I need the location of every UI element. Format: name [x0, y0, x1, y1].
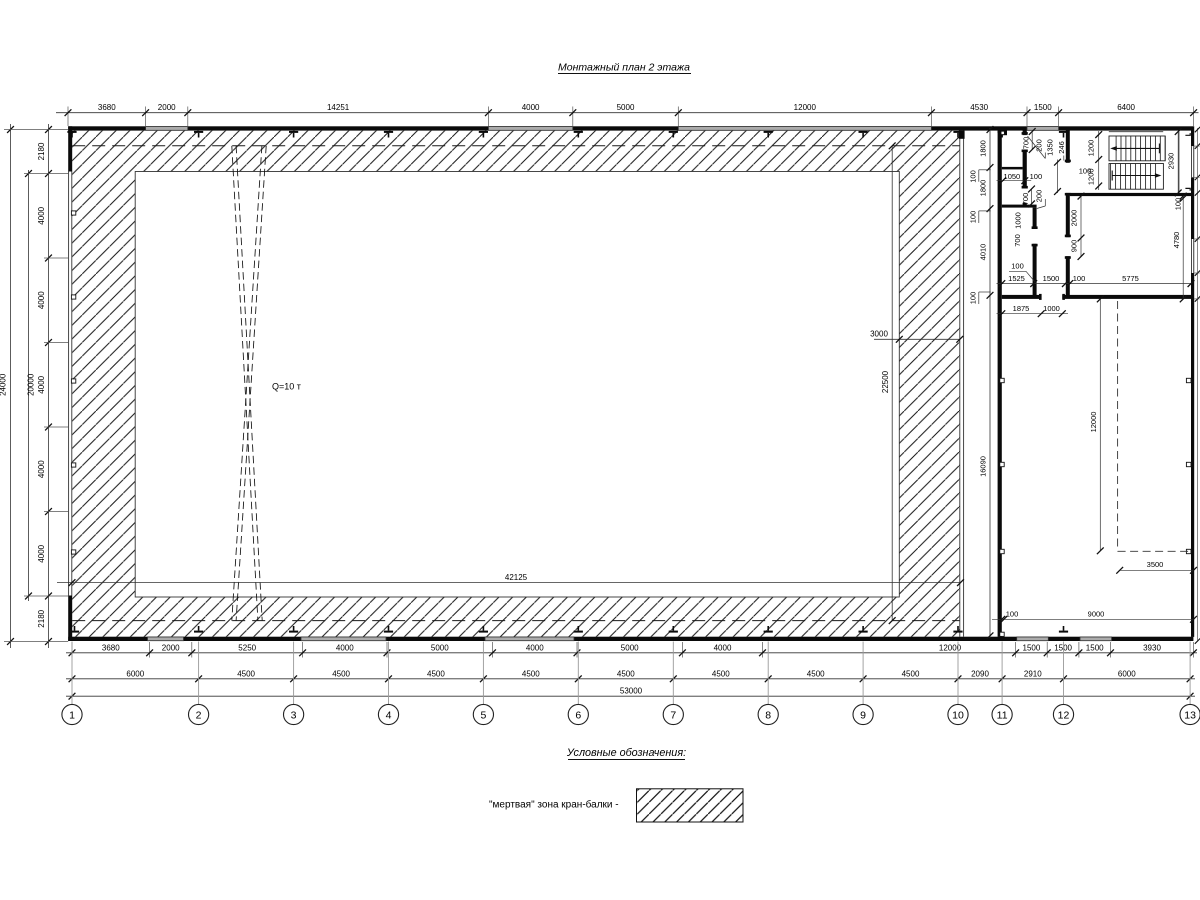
svg-text:1800: 1800: [979, 140, 988, 157]
svg-text:14251: 14251: [327, 103, 350, 112]
svg-text:4000: 4000: [37, 206, 46, 224]
svg-text:5000: 5000: [431, 643, 449, 652]
svg-text:2910: 2910: [1024, 669, 1042, 678]
svg-text:1500: 1500: [1086, 643, 1104, 652]
svg-text:200: 200: [1035, 190, 1044, 203]
svg-text:12: 12: [1058, 709, 1070, 721]
svg-text:900: 900: [1070, 240, 1079, 253]
svg-text:1000: 1000: [1013, 212, 1022, 229]
svg-text:13: 13: [1184, 709, 1196, 721]
svg-text:1: 1: [69, 709, 75, 721]
svg-text:5250: 5250: [238, 643, 256, 652]
svg-text:Q=10 т: Q=10 т: [272, 382, 301, 392]
svg-text:1000: 1000: [1043, 304, 1060, 313]
svg-text:6000: 6000: [1118, 669, 1136, 678]
svg-text:3680: 3680: [98, 103, 116, 112]
svg-text:5: 5: [480, 709, 486, 721]
svg-text:1875: 1875: [1013, 304, 1030, 313]
svg-text:12000: 12000: [794, 103, 817, 112]
svg-text:53000: 53000: [620, 687, 643, 696]
svg-text:4000: 4000: [336, 643, 354, 652]
svg-text:1350: 1350: [1045, 139, 1054, 156]
svg-text:Условные обозначения:: Условные обозначения:: [566, 747, 686, 759]
svg-text:4500: 4500: [427, 669, 445, 678]
svg-text:4000: 4000: [37, 375, 46, 393]
svg-text:1800: 1800: [979, 180, 988, 197]
svg-text:246: 246: [1057, 141, 1066, 154]
svg-text:1200: 1200: [1087, 140, 1096, 157]
svg-text:100: 100: [1174, 198, 1183, 211]
svg-text:1500: 1500: [1043, 274, 1060, 283]
svg-text:11: 11: [997, 709, 1008, 721]
svg-text:3930: 3930: [1143, 643, 1161, 652]
svg-text:2090: 2090: [971, 669, 989, 678]
svg-text:"мертвая" зона кран-балки -: "мертвая" зона кран-балки -: [489, 799, 619, 811]
svg-text:4500: 4500: [902, 669, 920, 678]
svg-text:4010: 4010: [979, 244, 988, 261]
svg-text:3000: 3000: [870, 330, 888, 339]
svg-text:4000: 4000: [37, 460, 46, 478]
svg-text:4500: 4500: [522, 669, 540, 678]
svg-text:9000: 9000: [1088, 610, 1105, 619]
svg-text:2000: 2000: [158, 103, 176, 112]
svg-text:3680: 3680: [102, 643, 120, 652]
svg-text:7: 7: [670, 709, 676, 721]
svg-text:1525: 1525: [1008, 274, 1025, 283]
svg-text:100: 100: [1011, 262, 1024, 271]
svg-text:4500: 4500: [237, 669, 255, 678]
svg-text:4500: 4500: [712, 669, 730, 678]
svg-text:Монтажный план 2 этажа: Монтажный план 2 этажа: [558, 62, 690, 74]
svg-text:2000: 2000: [1070, 210, 1079, 227]
svg-text:4000: 4000: [37, 544, 46, 562]
svg-text:4000: 4000: [522, 103, 540, 112]
svg-text:42125: 42125: [505, 573, 528, 582]
svg-text:6000: 6000: [126, 669, 144, 678]
svg-text:4500: 4500: [332, 669, 350, 678]
svg-text:16090: 16090: [979, 456, 988, 477]
svg-text:4000: 4000: [37, 291, 46, 309]
svg-text:1500: 1500: [1034, 103, 1052, 112]
svg-text:10: 10: [952, 709, 964, 721]
svg-text:5000: 5000: [621, 643, 639, 652]
svg-text:100: 100: [968, 170, 977, 183]
svg-text:3500: 3500: [1147, 560, 1164, 569]
svg-text:700: 700: [1013, 234, 1022, 247]
svg-text:6: 6: [575, 709, 581, 721]
svg-text:1200: 1200: [1087, 168, 1096, 185]
svg-text:2: 2: [196, 709, 202, 721]
svg-text:6400: 6400: [1117, 103, 1135, 112]
svg-text:4000: 4000: [714, 643, 732, 652]
svg-text:4000: 4000: [526, 643, 544, 652]
svg-text:4500: 4500: [617, 669, 635, 678]
svg-text:2180: 2180: [37, 609, 46, 627]
svg-text:2930: 2930: [1166, 153, 1175, 170]
svg-text:100: 100: [968, 211, 977, 224]
svg-text:100: 100: [1073, 274, 1086, 283]
svg-text:3: 3: [291, 709, 297, 721]
svg-text:100: 100: [968, 292, 977, 305]
svg-text:8: 8: [765, 709, 771, 721]
svg-text:4500: 4500: [807, 669, 825, 678]
svg-text:20000: 20000: [27, 373, 36, 396]
svg-text:5775: 5775: [1122, 274, 1139, 283]
svg-text:4780: 4780: [1172, 232, 1181, 249]
svg-text:4: 4: [386, 709, 392, 721]
svg-text:4530: 4530: [970, 103, 988, 112]
svg-text:100: 100: [1006, 610, 1019, 619]
svg-text:1500: 1500: [1023, 643, 1041, 652]
svg-text:200: 200: [1035, 139, 1044, 152]
svg-text:22500: 22500: [881, 370, 890, 393]
svg-text:2000: 2000: [162, 643, 180, 652]
svg-text:100: 100: [1030, 172, 1043, 181]
svg-text:24000: 24000: [0, 373, 8, 396]
svg-text:2180: 2180: [37, 142, 46, 160]
svg-text:9: 9: [860, 709, 866, 721]
svg-text:12000: 12000: [1089, 412, 1098, 433]
svg-text:1050: 1050: [1004, 172, 1021, 181]
svg-text:5000: 5000: [617, 103, 635, 112]
